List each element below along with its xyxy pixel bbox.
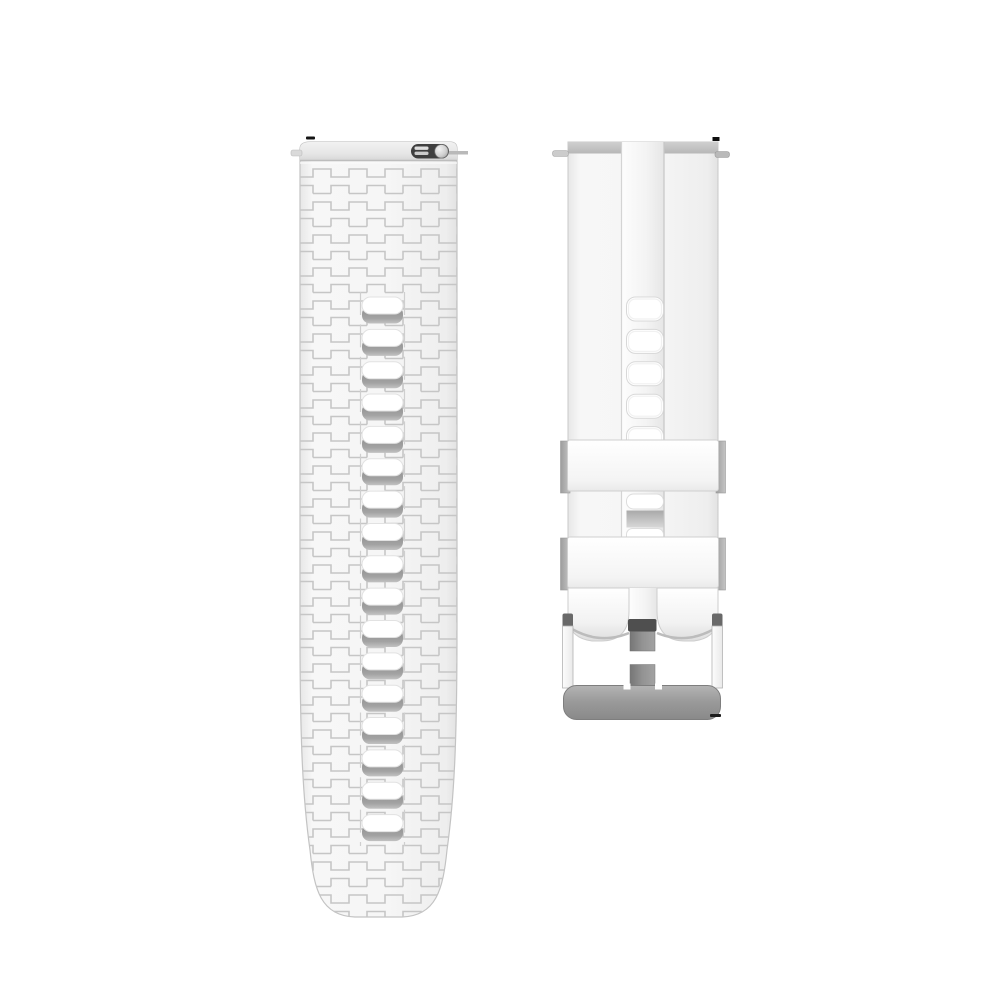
lever-slit-top [415, 147, 429, 150]
buckle-tongue-lower [630, 665, 655, 687]
strap-hole [362, 782, 403, 809]
buckle-bottom-bar [564, 686, 721, 720]
bar-gap-left [624, 684, 631, 690]
strap-hole [627, 329, 664, 353]
strap-hole [362, 815, 403, 842]
keeper-loop-top [561, 440, 726, 493]
strap-hole [362, 556, 403, 583]
left-strap [291, 137, 468, 919]
strap-hole [362, 523, 403, 550]
strap-hole [362, 750, 403, 777]
strap-hole [627, 297, 664, 321]
spring-bar-pin-tip-left [291, 150, 302, 156]
quick-release-knob [435, 145, 449, 159]
right-strap [553, 137, 730, 720]
product-photo [0, 0, 1000, 1000]
strap-hole [362, 426, 403, 453]
buckle-tongue-upper [630, 632, 655, 652]
strap-hole [627, 494, 664, 509]
strap-hole [627, 394, 664, 418]
keeper-face [568, 537, 719, 588]
strap-hole [362, 653, 403, 680]
photo-artifact-mark-bottom-right [710, 714, 721, 717]
tongue-slot [628, 619, 657, 632]
channel-end [629, 588, 657, 621]
keeper-face [568, 440, 719, 491]
photo-artifact-mark-top-left [306, 137, 315, 140]
strap-hole [362, 718, 403, 745]
right-strap-holes [627, 297, 664, 451]
channel-recess [627, 511, 664, 528]
strap-hole [362, 297, 403, 324]
strap-hole [362, 491, 403, 517]
lever-slit-bottom [415, 152, 429, 155]
buckle-corner-cap-right [712, 614, 723, 628]
watch-band-illustration [0, 0, 1000, 1000]
strap-hole [362, 685, 403, 712]
spring-bar-pin-tip-left [553, 151, 569, 157]
keeper-loop-bottom [561, 537, 726, 590]
strap-hole [362, 588, 403, 615]
spring-bar-pin-tip-right [449, 151, 468, 155]
strap-hole [362, 329, 403, 356]
strap-hole [362, 362, 403, 389]
strap-hole [362, 621, 403, 648]
left-strap-holes [362, 297, 403, 841]
spring-bar-pin-tip-right [715, 152, 730, 158]
photo-artifact-mark-top-right [713, 137, 720, 141]
buckle-arm-right [712, 626, 723, 688]
strap-hole [362, 394, 403, 421]
buckle-corner-cap-left [563, 614, 574, 628]
strap-hole [627, 362, 664, 386]
strap-hole [362, 459, 403, 486]
buckle-arm-left [563, 626, 574, 688]
bar-gap-right [655, 684, 662, 690]
